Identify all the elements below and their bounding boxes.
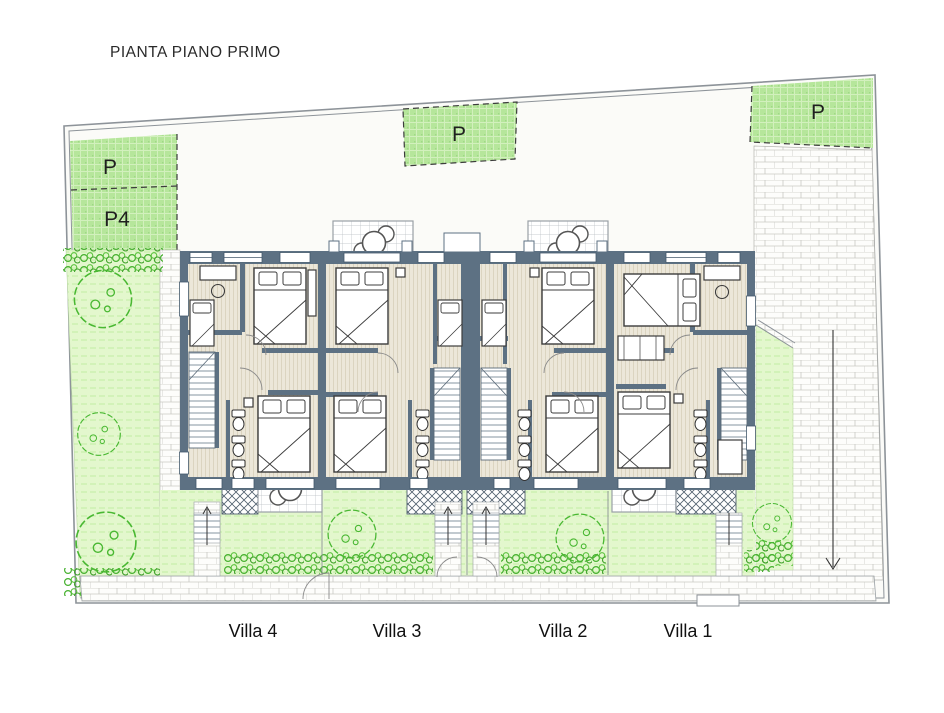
parking-area-top-right: P <box>750 78 873 148</box>
parking-label-p: P <box>811 101 825 124</box>
hedge-icon <box>63 248 163 272</box>
villa-label-2: Villa 2 <box>539 621 588 641</box>
wardrobe <box>308 270 316 316</box>
sidewalk <box>80 573 876 606</box>
toilet-icon <box>518 410 531 431</box>
right-garden <box>756 325 793 570</box>
bed-icon <box>254 268 306 344</box>
toilet-icon <box>232 460 245 481</box>
entry-path <box>473 502 499 577</box>
entry-path <box>435 502 461 577</box>
villa-label-4: Villa 4 <box>229 621 278 641</box>
terrace <box>222 488 258 514</box>
bed-icon <box>336 268 388 344</box>
plan-title: PIANTA PIANO PRIMO <box>110 44 281 61</box>
building <box>180 233 756 490</box>
wardrobe <box>618 336 664 360</box>
villa-label-3: Villa 3 <box>373 621 422 641</box>
bed-icon <box>334 396 386 472</box>
toilet-icon <box>416 460 429 481</box>
toilet-icon <box>232 410 245 431</box>
parking-area-top-middle: P <box>403 102 517 166</box>
toilet-icon <box>518 436 531 457</box>
bed-icon <box>624 274 700 326</box>
parking-label-p: P <box>452 123 466 146</box>
villa-label-1: Villa 1 <box>664 621 713 641</box>
side-path <box>160 250 180 506</box>
toilet-icon <box>694 436 707 457</box>
hedge-icon <box>501 552 606 574</box>
gate <box>697 595 739 606</box>
floor-plan-page: P P4 P P <box>0 0 944 713</box>
toilet-icon <box>416 436 429 457</box>
closet <box>718 440 742 474</box>
nightstand <box>396 268 405 277</box>
bed-icon <box>258 396 310 472</box>
hedge-icon <box>224 552 433 574</box>
toilet-icon <box>232 436 245 457</box>
nightstand <box>244 398 253 407</box>
toilet-icon <box>416 410 429 431</box>
toilet-icon <box>694 410 707 431</box>
bed-icon <box>190 300 214 346</box>
bed-icon <box>546 396 598 472</box>
hedge-icon <box>756 540 793 566</box>
floor-plan-canvas: P P4 P P <box>0 0 944 713</box>
villa-labels: Villa 4 Villa 3 Villa 2 Villa 1 <box>229 621 713 641</box>
nightstand <box>530 268 539 277</box>
parking-area-top-left: P P4 <box>70 134 177 251</box>
parking-label-p4: P4 <box>104 208 130 231</box>
entry-path <box>716 513 742 576</box>
desk <box>200 266 236 280</box>
entry-path <box>194 502 220 576</box>
bed-icon <box>482 300 506 346</box>
bed-icon <box>542 268 594 344</box>
bed-icon <box>438 300 462 346</box>
bed-icon <box>618 392 670 468</box>
terrace <box>676 488 736 514</box>
desk <box>704 266 740 280</box>
nightstand <box>674 394 683 403</box>
toilet-icon <box>694 460 707 481</box>
parking-label-p: P <box>103 156 117 179</box>
toilet-icon <box>518 460 531 481</box>
